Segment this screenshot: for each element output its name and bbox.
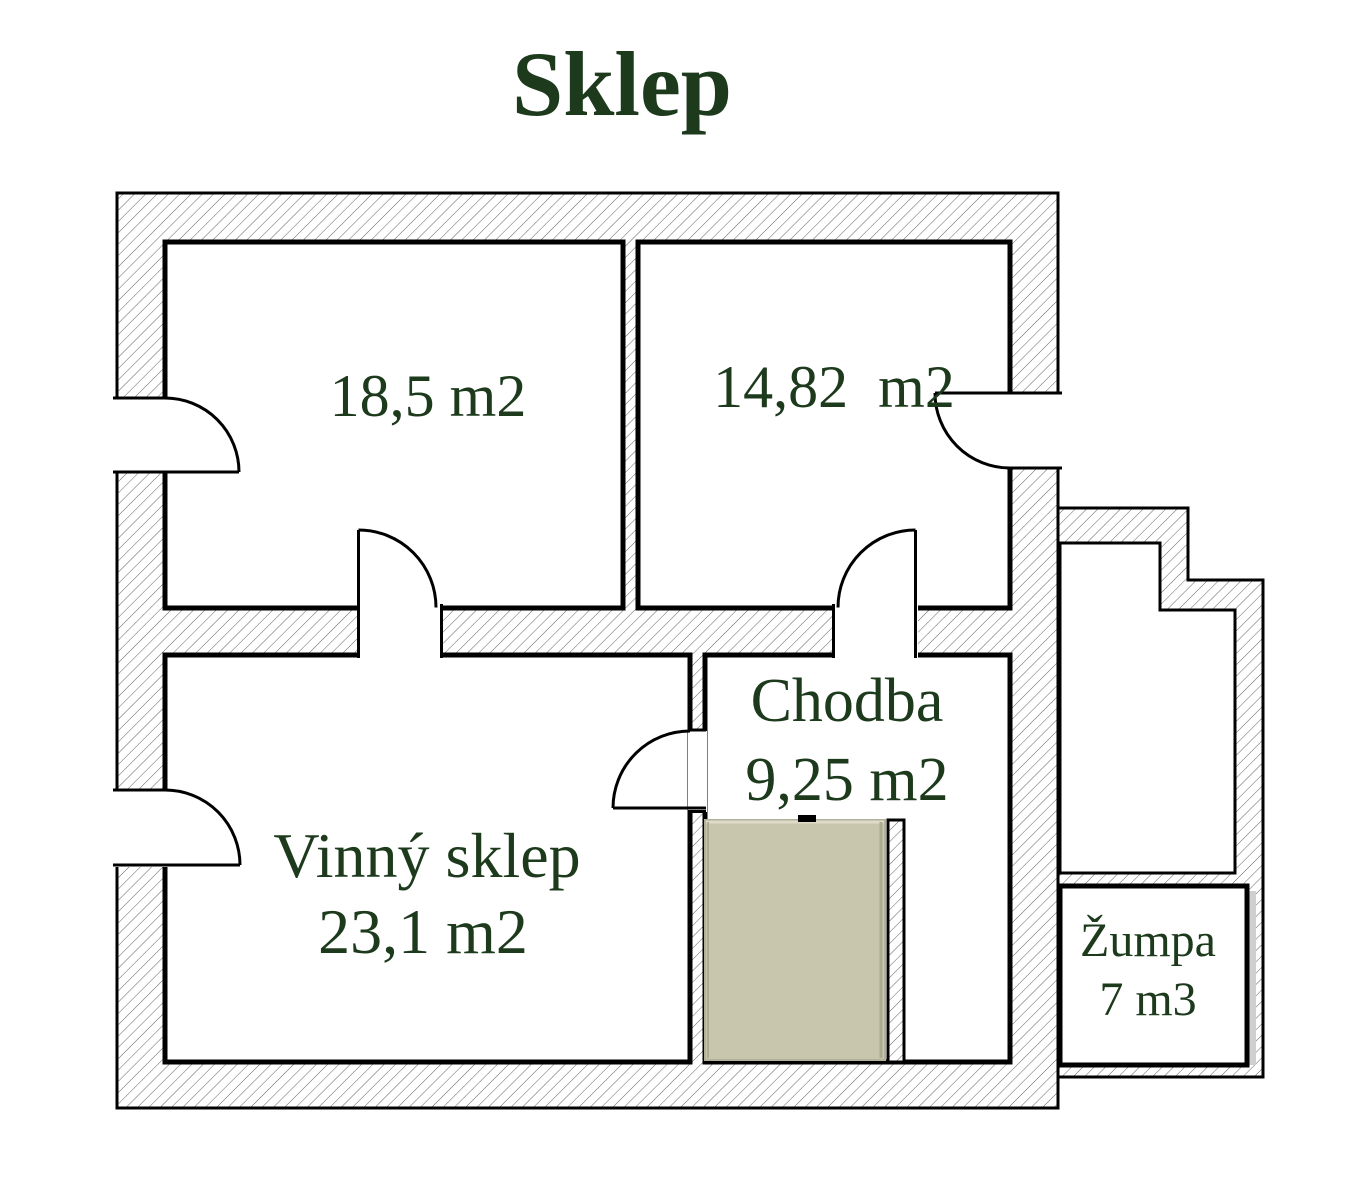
staircase-top-mark [798,815,816,822]
room-14-82 [638,242,1010,608]
door-opening-left-top [113,398,168,473]
staircase [705,820,885,1060]
room-name-chodba: Chodba [751,670,944,732]
room-label-18-5: 18,5 m2 [330,366,527,426]
room-name-zumpa: Žumpa [1080,917,1216,965]
room-name-vinny-sklep: Vinný sklep [273,824,580,888]
room-area-chodba: 9,25 m2 [745,749,948,811]
room-volume-zumpa: 7 m3 [1099,976,1196,1024]
room-label-14-82: 14,82 m2 [713,357,955,417]
plan-title: Sklep [512,38,732,130]
door-opening-mid-left [357,604,443,659]
zumpa-shadow [1249,891,1256,1065]
door-opening-right [1007,393,1063,468]
room-area-vinny-sklep: 23,1 m2 [318,900,528,964]
door-opening-chodba [688,731,707,812]
staircase-side-wall [888,820,904,1062]
door-opening-left-bottom [113,790,168,867]
door-opening-mid-right [832,604,918,659]
